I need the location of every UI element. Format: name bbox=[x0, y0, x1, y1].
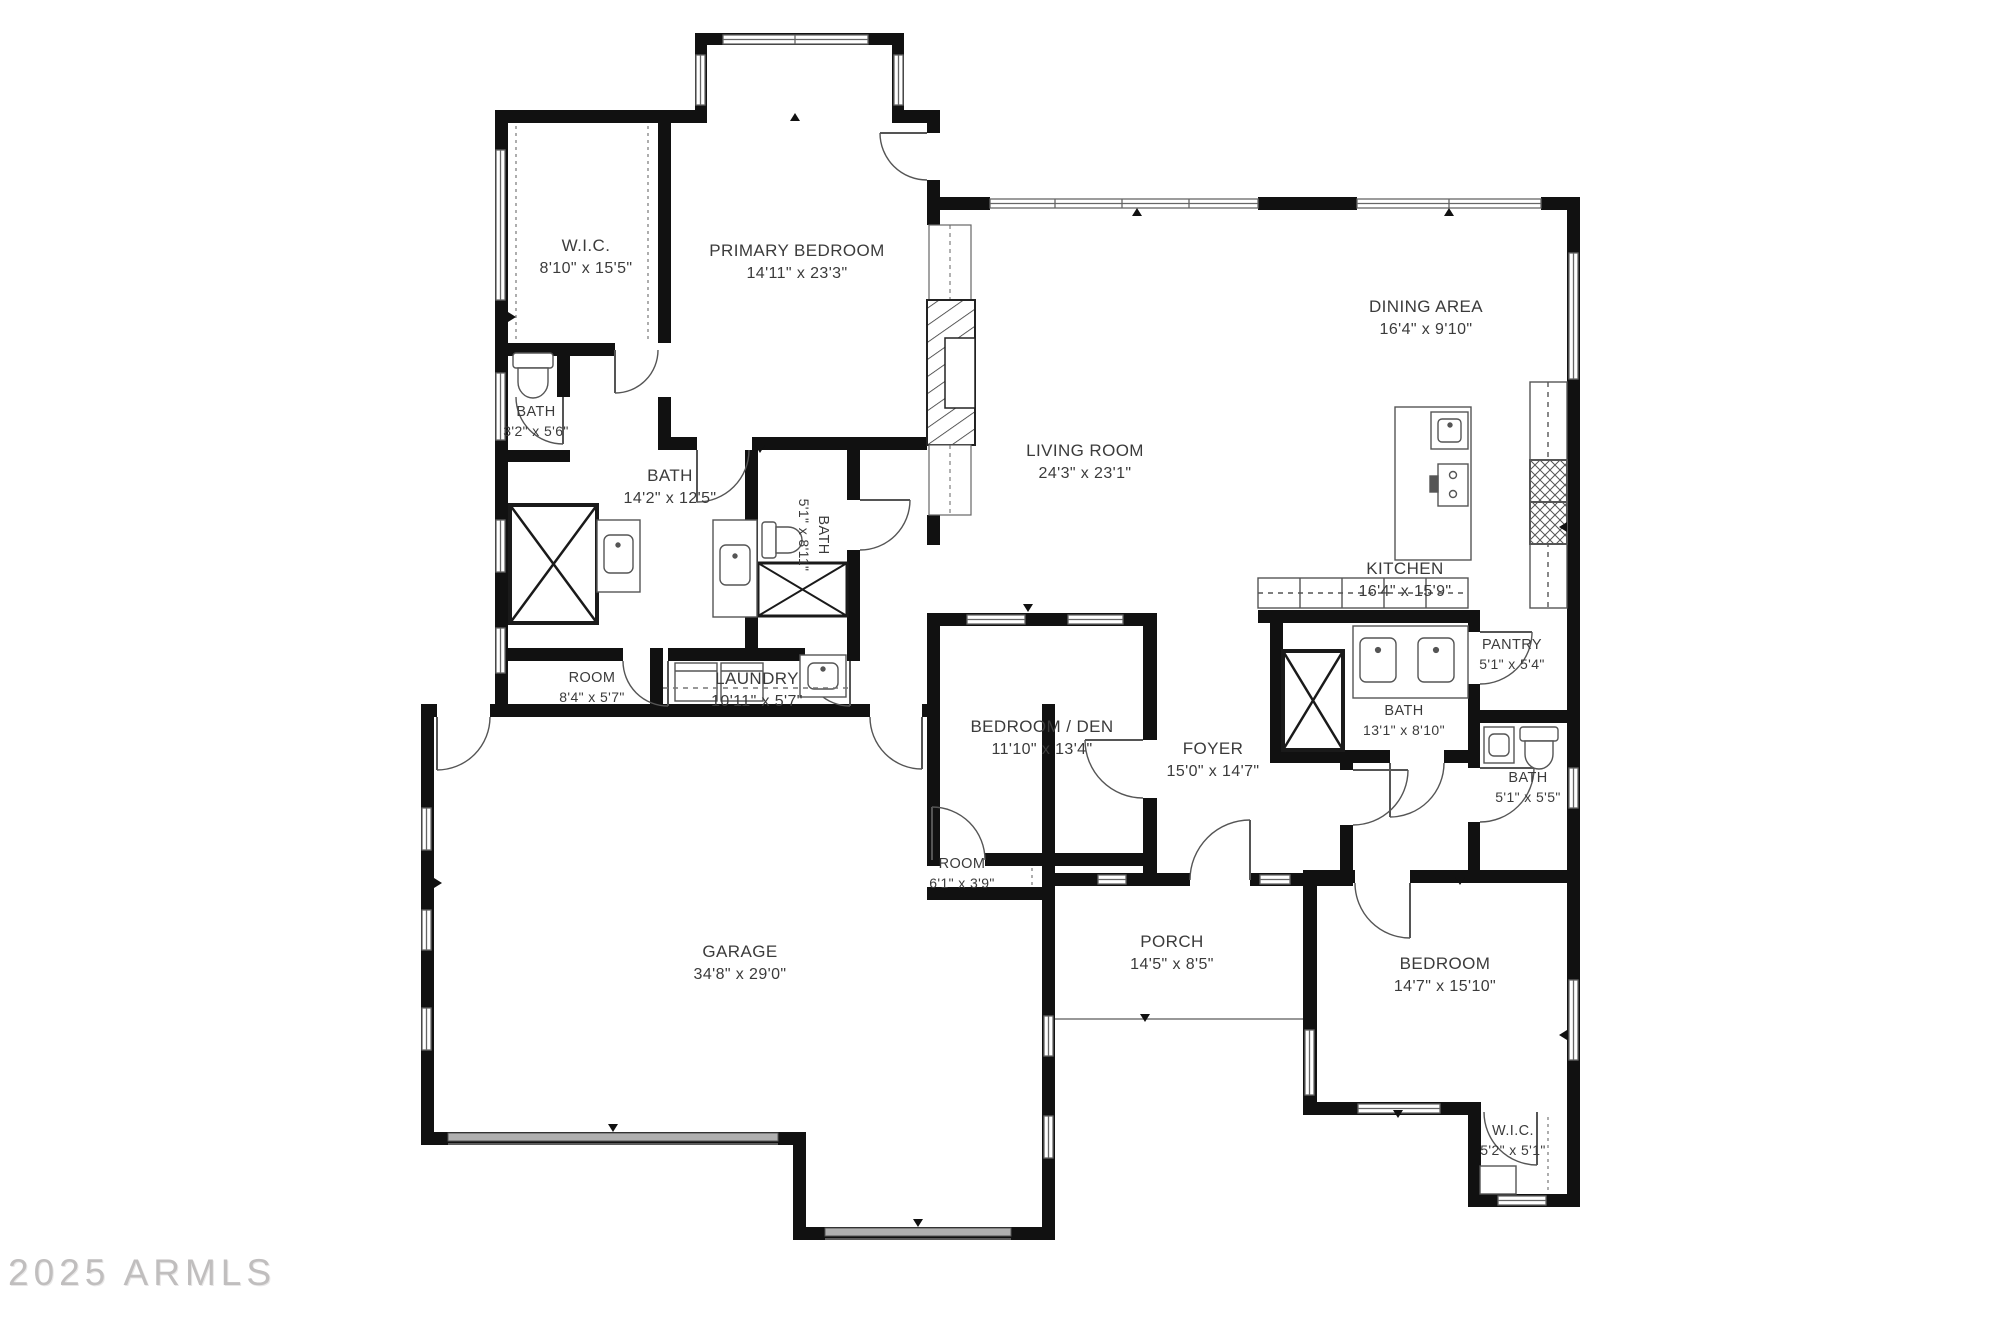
room-dimensions: 5'2" x 5'1" bbox=[1480, 1141, 1546, 1161]
room-dimensions: 11'10" x 13'4" bbox=[970, 739, 1113, 761]
room-dimensions: 15'0" x 14'7" bbox=[1167, 761, 1260, 783]
window bbox=[1498, 1196, 1546, 1205]
window bbox=[696, 55, 705, 105]
room-dimensions: 14'2" x 12'5" bbox=[624, 488, 717, 510]
window bbox=[1569, 768, 1578, 808]
room-label-dining-area: DINING AREA16'4" x 9'10" bbox=[1369, 295, 1483, 341]
room-name: DINING AREA bbox=[1369, 295, 1483, 319]
room-dimensions: 3'2" x 5'6" bbox=[503, 422, 569, 442]
room-name: BEDROOM / DEN bbox=[970, 715, 1113, 739]
door bbox=[1390, 763, 1444, 817]
room-dimensions: 8'10" x 15'5" bbox=[540, 258, 633, 280]
room-name: W.I.C. bbox=[1480, 1121, 1546, 1141]
room-name: W.I.C. bbox=[540, 234, 633, 258]
window bbox=[990, 199, 1258, 208]
sink-vanity bbox=[713, 520, 757, 617]
toilet bbox=[513, 353, 553, 398]
window bbox=[894, 55, 903, 105]
room-dimensions: 14'11" x 23'3" bbox=[709, 263, 884, 285]
room-dimensions: 5'1" x 8'11" bbox=[793, 499, 813, 572]
room-dimensions: 13'1" x 8'10" bbox=[1363, 721, 1445, 741]
door bbox=[1355, 883, 1410, 938]
room-dimensions: 10'11" x 5'7" bbox=[711, 691, 803, 713]
garage-door bbox=[448, 1133, 1011, 1239]
window bbox=[422, 910, 431, 950]
window bbox=[1260, 875, 1290, 884]
door bbox=[615, 350, 658, 393]
room-label-wic-bedroom: W.I.C.5'2" x 5'1" bbox=[1480, 1121, 1546, 1161]
room-name: ROOM bbox=[929, 854, 995, 874]
room-name: BATH bbox=[813, 499, 833, 572]
room-name: LIVING ROOM bbox=[1026, 439, 1144, 463]
kitchen-island bbox=[1395, 407, 1471, 560]
room-dimensions: 34'8" x 29'0" bbox=[694, 964, 787, 986]
shower bbox=[1283, 651, 1343, 750]
closet-shelf bbox=[1480, 1166, 1516, 1194]
shower bbox=[510, 505, 597, 623]
door bbox=[880, 133, 927, 180]
room-label-garage: GARAGE34'8" x 29'0" bbox=[694, 940, 787, 986]
appliance bbox=[1530, 460, 1567, 544]
room-dimensions: 14'5" x 8'5" bbox=[1130, 954, 1214, 976]
window bbox=[1044, 1116, 1053, 1158]
kitchen-counter bbox=[1530, 382, 1567, 608]
room-label-pantry: PANTRY5'1" x 5'4" bbox=[1479, 635, 1545, 675]
window bbox=[1068, 615, 1123, 624]
room-name: BEDROOM bbox=[1394, 952, 1496, 976]
room-name: BATH bbox=[503, 402, 569, 422]
room-label-wic-primary: W.I.C.8'10" x 15'5" bbox=[540, 234, 633, 280]
toilet bbox=[1520, 727, 1558, 769]
room-label-living-room: LIVING ROOM24'3" x 23'1" bbox=[1026, 439, 1144, 485]
laundry-sink bbox=[800, 655, 846, 697]
door bbox=[860, 500, 910, 550]
window bbox=[1305, 1030, 1314, 1095]
room-dimensions: 16'4" x 9'10" bbox=[1369, 319, 1483, 341]
room-dimensions: 8'4" x 5'7" bbox=[559, 688, 625, 708]
room-label-primary-bedroom: PRIMARY BEDROOM14'11" x 23'3" bbox=[709, 239, 884, 285]
room-name: PORCH bbox=[1130, 930, 1214, 954]
door bbox=[1190, 820, 1250, 880]
room-label-room-6-1: ROOM6'1" x 3'9" bbox=[929, 854, 995, 894]
room-dimensions: 14'7" x 15'10" bbox=[1394, 976, 1496, 998]
room-dimensions: 6'1" x 3'9" bbox=[929, 874, 995, 894]
room-label-bath-13-1: BATH13'1" x 8'10" bbox=[1363, 701, 1445, 741]
window bbox=[496, 520, 505, 572]
door bbox=[437, 717, 490, 770]
room-name: FOYER bbox=[1167, 737, 1260, 761]
room-label-laundry: LAUNDRY10'11" x 5'7" bbox=[711, 667, 803, 713]
window bbox=[1357, 199, 1541, 208]
window bbox=[1569, 980, 1578, 1060]
window bbox=[723, 35, 868, 44]
window bbox=[422, 808, 431, 850]
window bbox=[1569, 253, 1578, 379]
floor-plan: W.I.C.8'10" x 15'5"PRIMARY BEDROOM14'11"… bbox=[0, 0, 2000, 1333]
room-label-room-8-4: ROOM8'4" x 5'7" bbox=[559, 668, 625, 708]
door bbox=[870, 717, 922, 769]
room-label-bath-5-1-5-5: BATH5'1" x 5'5" bbox=[1495, 768, 1561, 808]
sink-vanity bbox=[1353, 626, 1468, 698]
room-name: BATH bbox=[624, 464, 717, 488]
window bbox=[496, 628, 505, 673]
room-name: GARAGE bbox=[694, 940, 787, 964]
room-name: PRIMARY BEDROOM bbox=[709, 239, 884, 263]
window bbox=[1044, 1016, 1053, 1056]
room-dimensions: 5'1" x 5'4" bbox=[1479, 655, 1545, 675]
room-name: BATH bbox=[1363, 701, 1445, 721]
room-name: BATH bbox=[1495, 768, 1561, 788]
room-label-bedroom: BEDROOM14'7" x 15'10" bbox=[1394, 952, 1496, 998]
room-label-foyer: FOYER15'0" x 14'7" bbox=[1167, 737, 1260, 783]
window bbox=[1098, 875, 1126, 884]
floor-plan-drawing bbox=[0, 0, 2000, 1333]
watermark: 2025 ARMLS bbox=[8, 1252, 276, 1294]
room-name: PANTRY bbox=[1479, 635, 1545, 655]
room-label-bath-14-2: BATH14'2" x 12'5" bbox=[624, 464, 717, 510]
room-name: LAUNDRY bbox=[711, 667, 803, 691]
room-label-bath-5-1-8-11: BATH5'1" x 8'11" bbox=[793, 499, 833, 572]
room-dimensions: 5'1" x 5'5" bbox=[1495, 788, 1561, 808]
room-name: KITCHEN bbox=[1359, 557, 1452, 581]
room-dimensions: 24'3" x 23'1" bbox=[1026, 463, 1144, 485]
window bbox=[496, 150, 505, 300]
window bbox=[967, 615, 1025, 624]
fireplace bbox=[927, 225, 975, 515]
sink-vanity bbox=[1484, 727, 1514, 763]
room-dimensions: 16'4" x 15'9" bbox=[1359, 581, 1452, 603]
room-label-kitchen: KITCHEN16'4" x 15'9" bbox=[1359, 557, 1452, 603]
room-label-porch: PORCH14'5" x 8'5" bbox=[1130, 930, 1214, 976]
sink-vanity bbox=[597, 520, 640, 592]
room-label-bath-3-2: BATH3'2" x 5'6" bbox=[503, 402, 569, 442]
room-label-bedroom-den: BEDROOM / DEN11'10" x 13'4" bbox=[970, 715, 1113, 761]
window bbox=[422, 1008, 431, 1050]
room-name: ROOM bbox=[559, 668, 625, 688]
